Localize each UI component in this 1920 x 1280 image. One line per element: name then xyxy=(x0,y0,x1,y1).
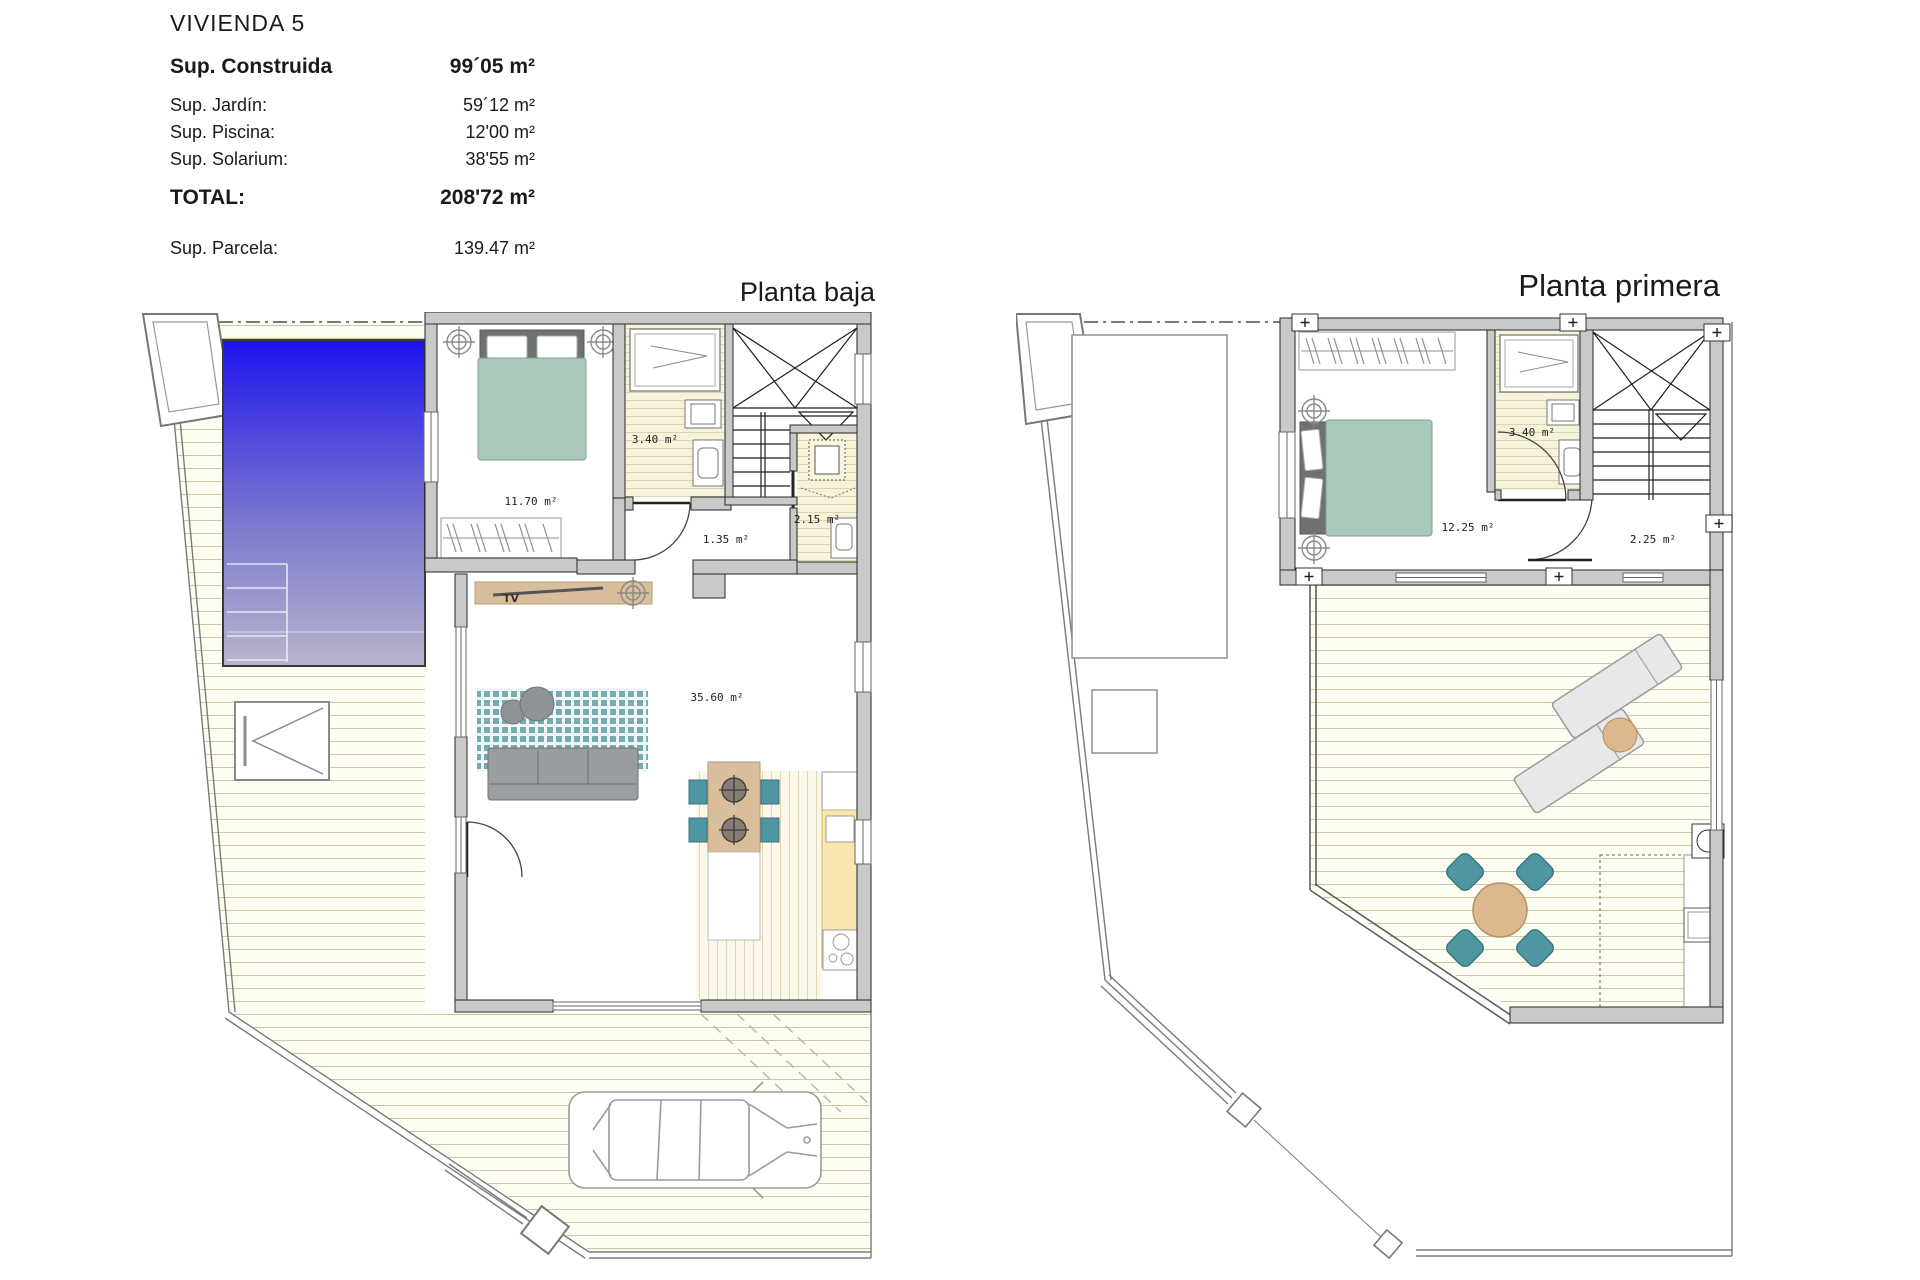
room-label-bathroom: 3.40 m² xyxy=(1509,426,1555,439)
washbasin xyxy=(1547,400,1579,425)
gate-fence xyxy=(1101,975,1402,1258)
cooktop xyxy=(823,930,859,970)
area-row-solarium: Sup. Solarium: 38'55 m² xyxy=(170,149,535,170)
kitchen-island xyxy=(708,852,760,940)
chair xyxy=(689,818,707,842)
room-label-hall: 1.35 m² xyxy=(703,533,749,546)
shower xyxy=(630,329,720,391)
area-value: 208'72 m² xyxy=(440,186,535,210)
wardrobe xyxy=(441,518,561,558)
sink xyxy=(826,816,854,842)
area-value: 99´05 m² xyxy=(450,55,535,79)
area-value: 12'00 m² xyxy=(466,122,535,143)
area-label: TOTAL: xyxy=(170,186,245,210)
area-row-parcela: Sup. Parcela: 139.47 m² xyxy=(170,238,535,259)
tv-label: TV xyxy=(503,592,520,605)
bed xyxy=(478,330,586,460)
plan-title-first: Planta primera xyxy=(1448,268,1720,304)
garden-box xyxy=(1092,690,1157,753)
pool-void xyxy=(1072,335,1227,658)
pool xyxy=(223,340,425,666)
bed xyxy=(1300,420,1432,536)
area-value: 139.47 m² xyxy=(454,238,535,259)
area-row-construida: Sup. Construida 99´05 m² xyxy=(170,55,535,79)
area-value: 59´12 m² xyxy=(463,95,535,116)
chair xyxy=(761,818,779,842)
room-label-wc: 2.15 m² xyxy=(794,513,840,526)
area-label: Sup. Parcela: xyxy=(170,238,278,259)
chair xyxy=(761,780,779,804)
room-label-landing: 2.25 m² xyxy=(1630,533,1676,546)
outdoor-shower xyxy=(235,702,329,780)
area-label: Sup. Solarium: xyxy=(170,149,288,170)
room-label-bedroom: 11.70 m² xyxy=(505,495,558,508)
plan-title-ground: Planta baja xyxy=(650,277,875,308)
washbasin xyxy=(685,400,721,428)
shower xyxy=(1500,335,1578,392)
ground-floor-plan: TV xyxy=(141,312,875,1267)
sofa xyxy=(488,748,638,800)
room-label-bathroom: 3.40 m² xyxy=(632,433,678,446)
chair xyxy=(689,780,707,804)
area-row-piscina: Sup. Piscina: 12'00 m² xyxy=(170,122,535,143)
room-label-living: 35.60 m² xyxy=(691,691,744,704)
area-row-total: TOTAL: 208'72 m² xyxy=(170,186,535,210)
page-title: VIVIENDA 5 xyxy=(170,10,305,37)
first-floor-plan: 12.25 m² 3.40 m² 2.25 m² xyxy=(1016,312,1733,1267)
wardrobe xyxy=(1299,332,1455,370)
side-table xyxy=(1603,718,1637,752)
toilet xyxy=(693,440,723,486)
car-icon xyxy=(569,1082,821,1198)
area-label: Sup. Jardín: xyxy=(170,95,267,116)
room-label-bedroom: 12.25 m² xyxy=(1442,521,1495,534)
kitchen-counter xyxy=(822,772,859,970)
area-label: Sup. Piscina: xyxy=(170,122,275,143)
tv-unit: TV xyxy=(475,577,652,609)
floorplan-sheet: VIVIENDA 5 Sup. Construida 99´05 m² Sup.… xyxy=(0,0,1920,1280)
area-value: 38'55 m² xyxy=(466,149,535,170)
area-row-jardin: Sup. Jardín: 59´12 m² xyxy=(170,95,535,116)
area-label: Sup. Construida xyxy=(170,55,332,79)
pouf-large xyxy=(520,687,554,721)
gate-pillar xyxy=(143,314,233,426)
